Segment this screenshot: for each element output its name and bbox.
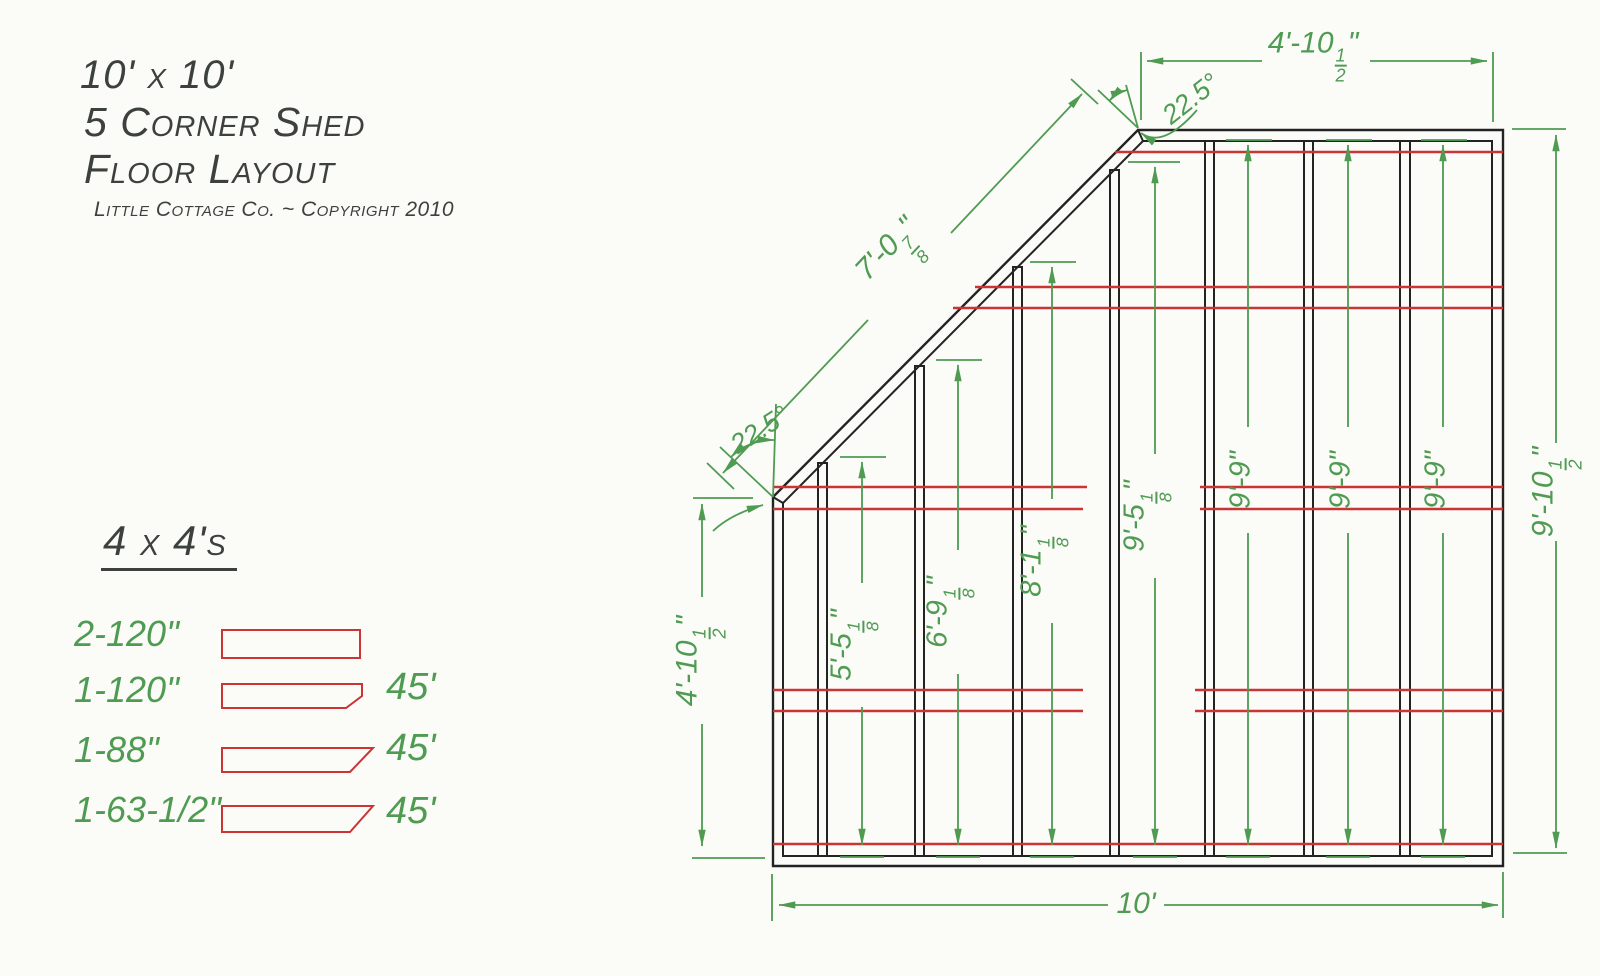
dim-right-height: 9'-1012" [1529, 447, 1586, 537]
dim-joist-2: 6'-918" [923, 576, 978, 647]
title-size: 10' x 10' [80, 55, 234, 95]
legend-shape-45-point-88 [222, 748, 373, 772]
dim-joist-5: 9'-9" [1227, 451, 1256, 509]
legend-cut-angle: 45' [386, 729, 436, 767]
title-name-line1: 5 Corner Shed [84, 102, 366, 143]
dim-joist-3: 8'-118" [1017, 525, 1072, 596]
legend-row-label: 1-120" [74, 672, 179, 708]
legend-shapes [222, 630, 373, 832]
title-name-line2: Floor Layout [84, 149, 335, 190]
blueprint-page: { "title": { "size_line": "10' x 10'", "… [0, 0, 1600, 976]
dim-joist-4: 9'-518" [1120, 480, 1175, 551]
legend-row-label: 1-88" [74, 732, 159, 768]
legend-row-label: 1-63-1/2" [74, 792, 221, 828]
title-copyright: Little Cottage Co. ~ Copyright 2010 [94, 199, 454, 220]
dim-joist-1: 5'-518" [827, 609, 882, 680]
dim-left-height: 4'-1012" [673, 616, 730, 706]
legend-cut-angle: 45' [386, 792, 436, 830]
legend-cut-angle: 45' [386, 668, 436, 706]
legend-shape-45-small [222, 684, 362, 708]
dim-joist-6: 9'-9" [1327, 451, 1356, 509]
dim-joist-7: 9'-9" [1422, 451, 1451, 509]
legend-header: 4 x 4's [101, 520, 237, 571]
legend-shape-45-point-63 [222, 806, 373, 832]
legend-row-label: 2-120" [74, 616, 179, 652]
dim-top-width: 4'-1012" [1268, 29, 1358, 86]
legend-shape-straight [222, 630, 360, 658]
dim-bottom-width: 10' [1116, 889, 1155, 919]
